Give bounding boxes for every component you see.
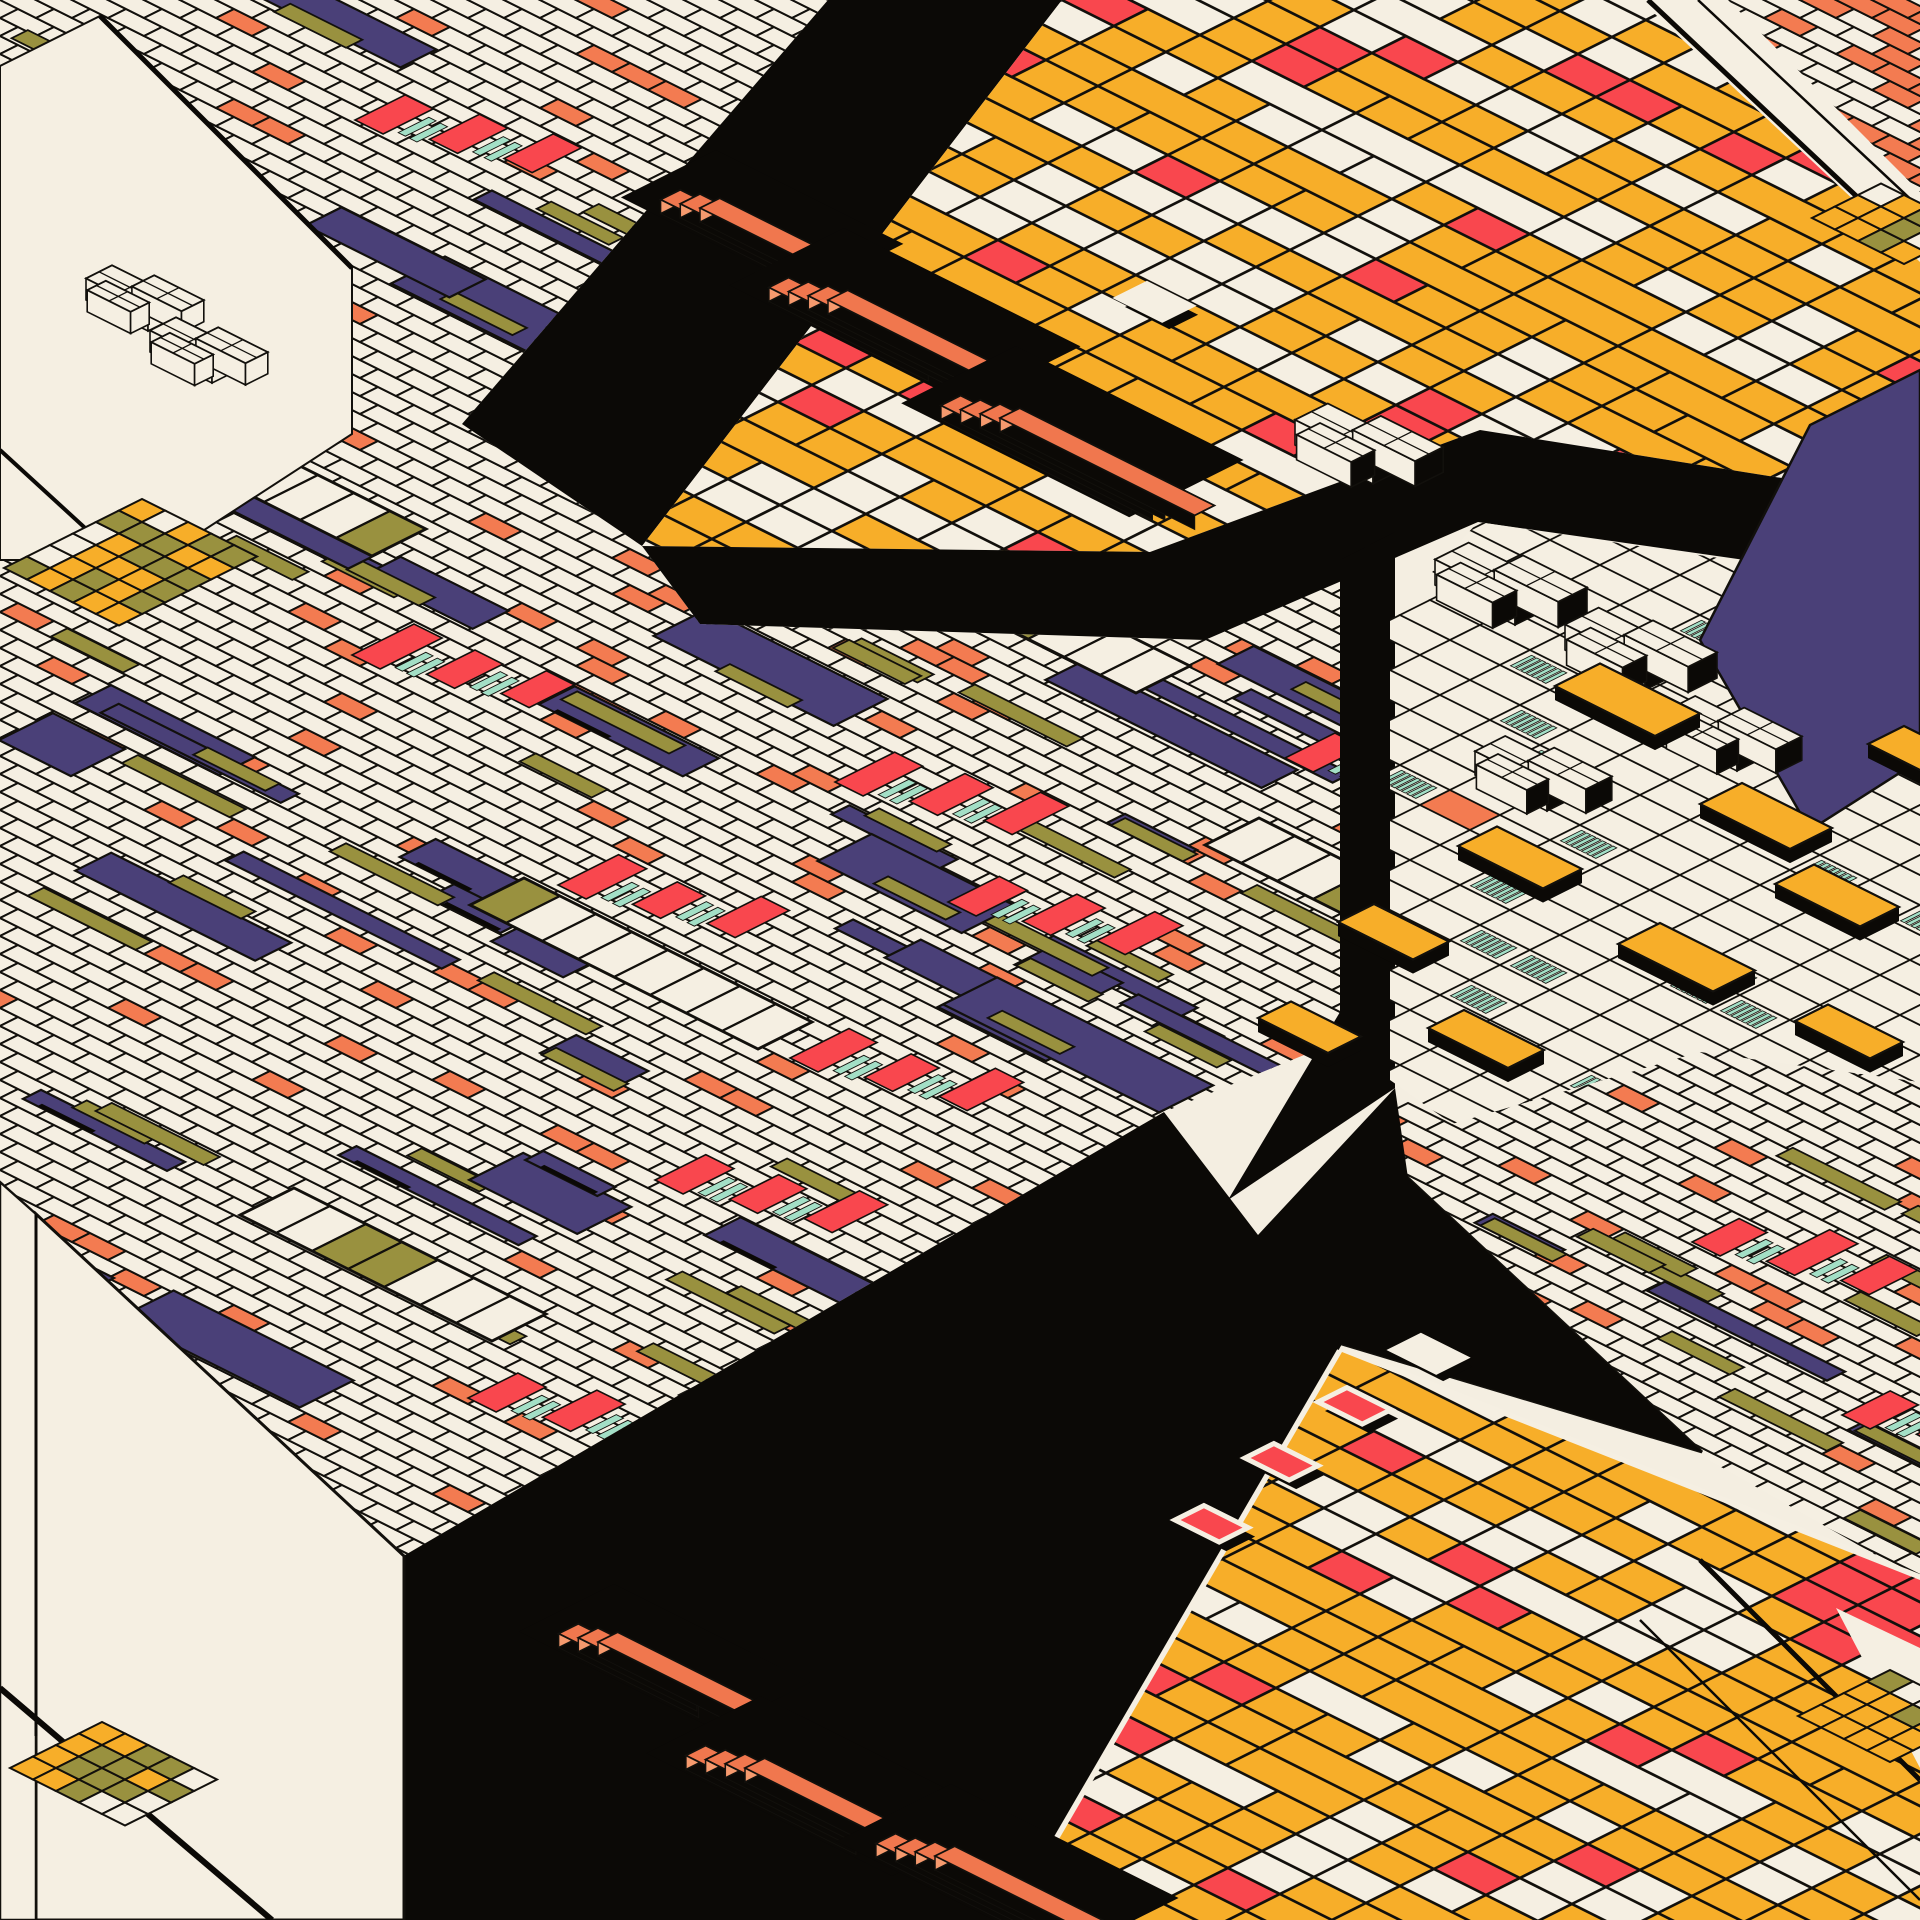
artwork-root: Isometric generative composition — tiled… (0, 0, 1920, 1920)
generative-artwork-canvas: Isometric generative composition — tiled… (0, 0, 1920, 1920)
cube-face-cream (0, 1182, 36, 1920)
